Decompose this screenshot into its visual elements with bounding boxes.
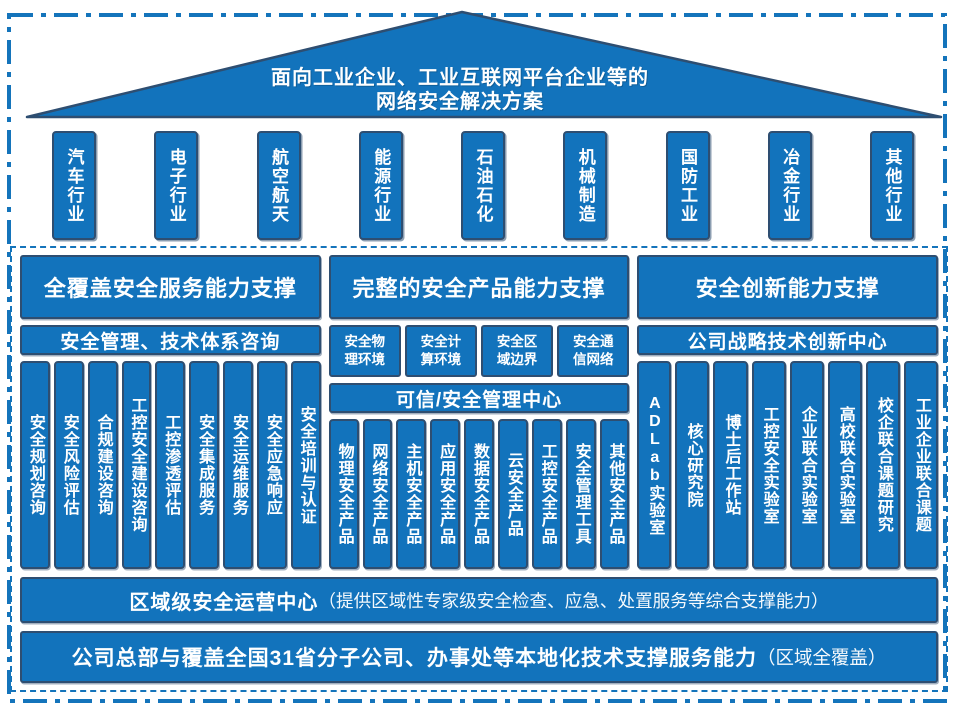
roof-title-line2: 网络安全解决方案 [0, 90, 920, 114]
headquarters-coverage-bar: 公司总部与覆盖全国31省分子公司、办事处等本地化技术支撑服务能力（区域全覆盖） [20, 631, 938, 683]
product-item-6: 云安全产品 [498, 419, 528, 569]
roof-title: 面向工业企业、工业互联网平台企业等的 网络安全解决方案 [0, 66, 920, 115]
regional-operations-bold: 区域级安全运营中心 [129, 586, 318, 615]
capability-section: 全覆盖安全服务能力支撑 安全管理、技术体系咨询 安全规划咨询安全风险评估合规建设… [10, 246, 948, 692]
column-security-products: 完整的安全产品能力支撑 安全物 理环境安全计 算环境安全区 域边界安全通 信网络… [329, 255, 630, 569]
innovation-item-1: ADLab实验室 [637, 361, 671, 569]
pillar-2: 电子行业 [154, 131, 198, 240]
service-item-8: 安全应急响应 [257, 361, 287, 569]
pillar-8: 冶金行业 [768, 131, 812, 240]
headquarters-coverage-note: （区域全覆盖） [757, 644, 886, 670]
innovation-item-2: 核心研究院 [675, 361, 709, 569]
services-items: 安全规划咨询安全风险评估合规建设咨询工控安全建设咨询工控渗透评估安全集成服务安全… [20, 361, 321, 569]
environment-boxes-row: 安全物 理环境安全计 算环境安全区 域边界安全通 信网络 [329, 325, 630, 377]
service-item-1: 安全规划咨询 [20, 361, 50, 569]
innovation-subbar: 公司战略技术创新中心 [637, 325, 938, 355]
products-column-header: 完整的安全产品能力支撑 [329, 255, 630, 319]
products-items: 物理安全产品网络安全产品主机安全产品应用安全产品数据安全产品云安全产品工控安全产… [329, 419, 630, 569]
column-security-innovation: 安全创新能力支撑 公司战略技术创新中心 ADLab实验室核心研究院博士后工作站工… [637, 255, 938, 569]
pillar-5: 石油石化 [461, 131, 505, 240]
innovation-items: ADLab实验室核心研究院博士后工作站工控安全实验室企业联合实验室高校联合实验室… [637, 361, 938, 569]
regional-operations-note: （提供区域性专家级安全检查、应急、处置服务等综合支撑能力） [318, 588, 828, 613]
innovation-item-8: 工业企业联合课题 [904, 361, 938, 569]
service-item-5: 工控渗透评估 [155, 361, 185, 569]
product-item-4: 应用安全产品 [430, 419, 460, 569]
security-architecture-diagram: 面向工业企业、工业互联网平台企业等的 网络安全解决方案 汽车行业电子行业航空航天… [0, 0, 960, 720]
pillar-6: 机械制造 [563, 131, 607, 240]
innovation-item-7: 校企联合课题研究 [866, 361, 900, 569]
pillar-7: 国防工业 [666, 131, 710, 240]
pillars-row: 汽车行业电子行业航空航天能源行业石油石化机械制造国防工业冶金行业其他行业 [52, 131, 914, 240]
service-item-6: 安全集成服务 [189, 361, 219, 569]
innovation-item-6: 高校联合实验室 [828, 361, 862, 569]
env-box-4: 安全通 信网络 [557, 325, 629, 377]
env-box-3: 安全区 域边界 [481, 325, 553, 377]
product-item-8: 安全管理工具 [566, 419, 596, 569]
roof-title-line1: 面向工业企业、工业互联网平台企业等的 [0, 66, 920, 90]
env-box-2: 安全计 算环境 [405, 325, 477, 377]
pillar-9: 其他行业 [870, 131, 914, 240]
column-security-services: 全覆盖安全服务能力支撑 安全管理、技术体系咨询 安全规划咨询安全风险评估合规建设… [20, 255, 321, 569]
service-item-4: 工控安全建设咨询 [122, 361, 152, 569]
innovation-item-4: 工控安全实验室 [752, 361, 786, 569]
services-column-header: 全覆盖安全服务能力支撑 [20, 255, 321, 319]
service-item-9: 安全培训与认证 [291, 361, 321, 569]
innovation-item-3: 博士后工作站 [713, 361, 747, 569]
service-item-3: 合规建设咨询 [88, 361, 118, 569]
services-subbar: 安全管理、技术体系咨询 [20, 325, 321, 355]
pillar-1: 汽车行业 [52, 131, 96, 240]
regional-operations-bar: 区域级安全运营中心（提供区域性专家级安全检查、应急、处置服务等综合支撑能力） [20, 577, 938, 623]
product-item-2: 网络安全产品 [363, 419, 393, 569]
product-item-3: 主机安全产品 [396, 419, 426, 569]
product-item-1: 物理安全产品 [329, 419, 359, 569]
product-item-9: 其他安全产品 [600, 419, 630, 569]
service-item-2: 安全风险评估 [54, 361, 84, 569]
innovation-item-5: 企业联合实验室 [790, 361, 824, 569]
pillar-4: 能源行业 [359, 131, 403, 240]
pillar-3: 航空航天 [257, 131, 301, 240]
product-item-5: 数据安全产品 [464, 419, 494, 569]
product-item-7: 工控安全产品 [532, 419, 562, 569]
products-subbar: 可信/安全管理中心 [329, 383, 630, 413]
service-item-7: 安全运维服务 [223, 361, 253, 569]
headquarters-coverage-bold: 公司总部与覆盖全国31省分子公司、办事处等本地化技术支撑服务能力 [72, 642, 757, 672]
env-box-1: 安全物 理环境 [329, 325, 401, 377]
capability-columns: 全覆盖安全服务能力支撑 安全管理、技术体系咨询 安全规划咨询安全风险评估合规建设… [20, 255, 938, 569]
innovation-column-header: 安全创新能力支撑 [637, 255, 938, 319]
